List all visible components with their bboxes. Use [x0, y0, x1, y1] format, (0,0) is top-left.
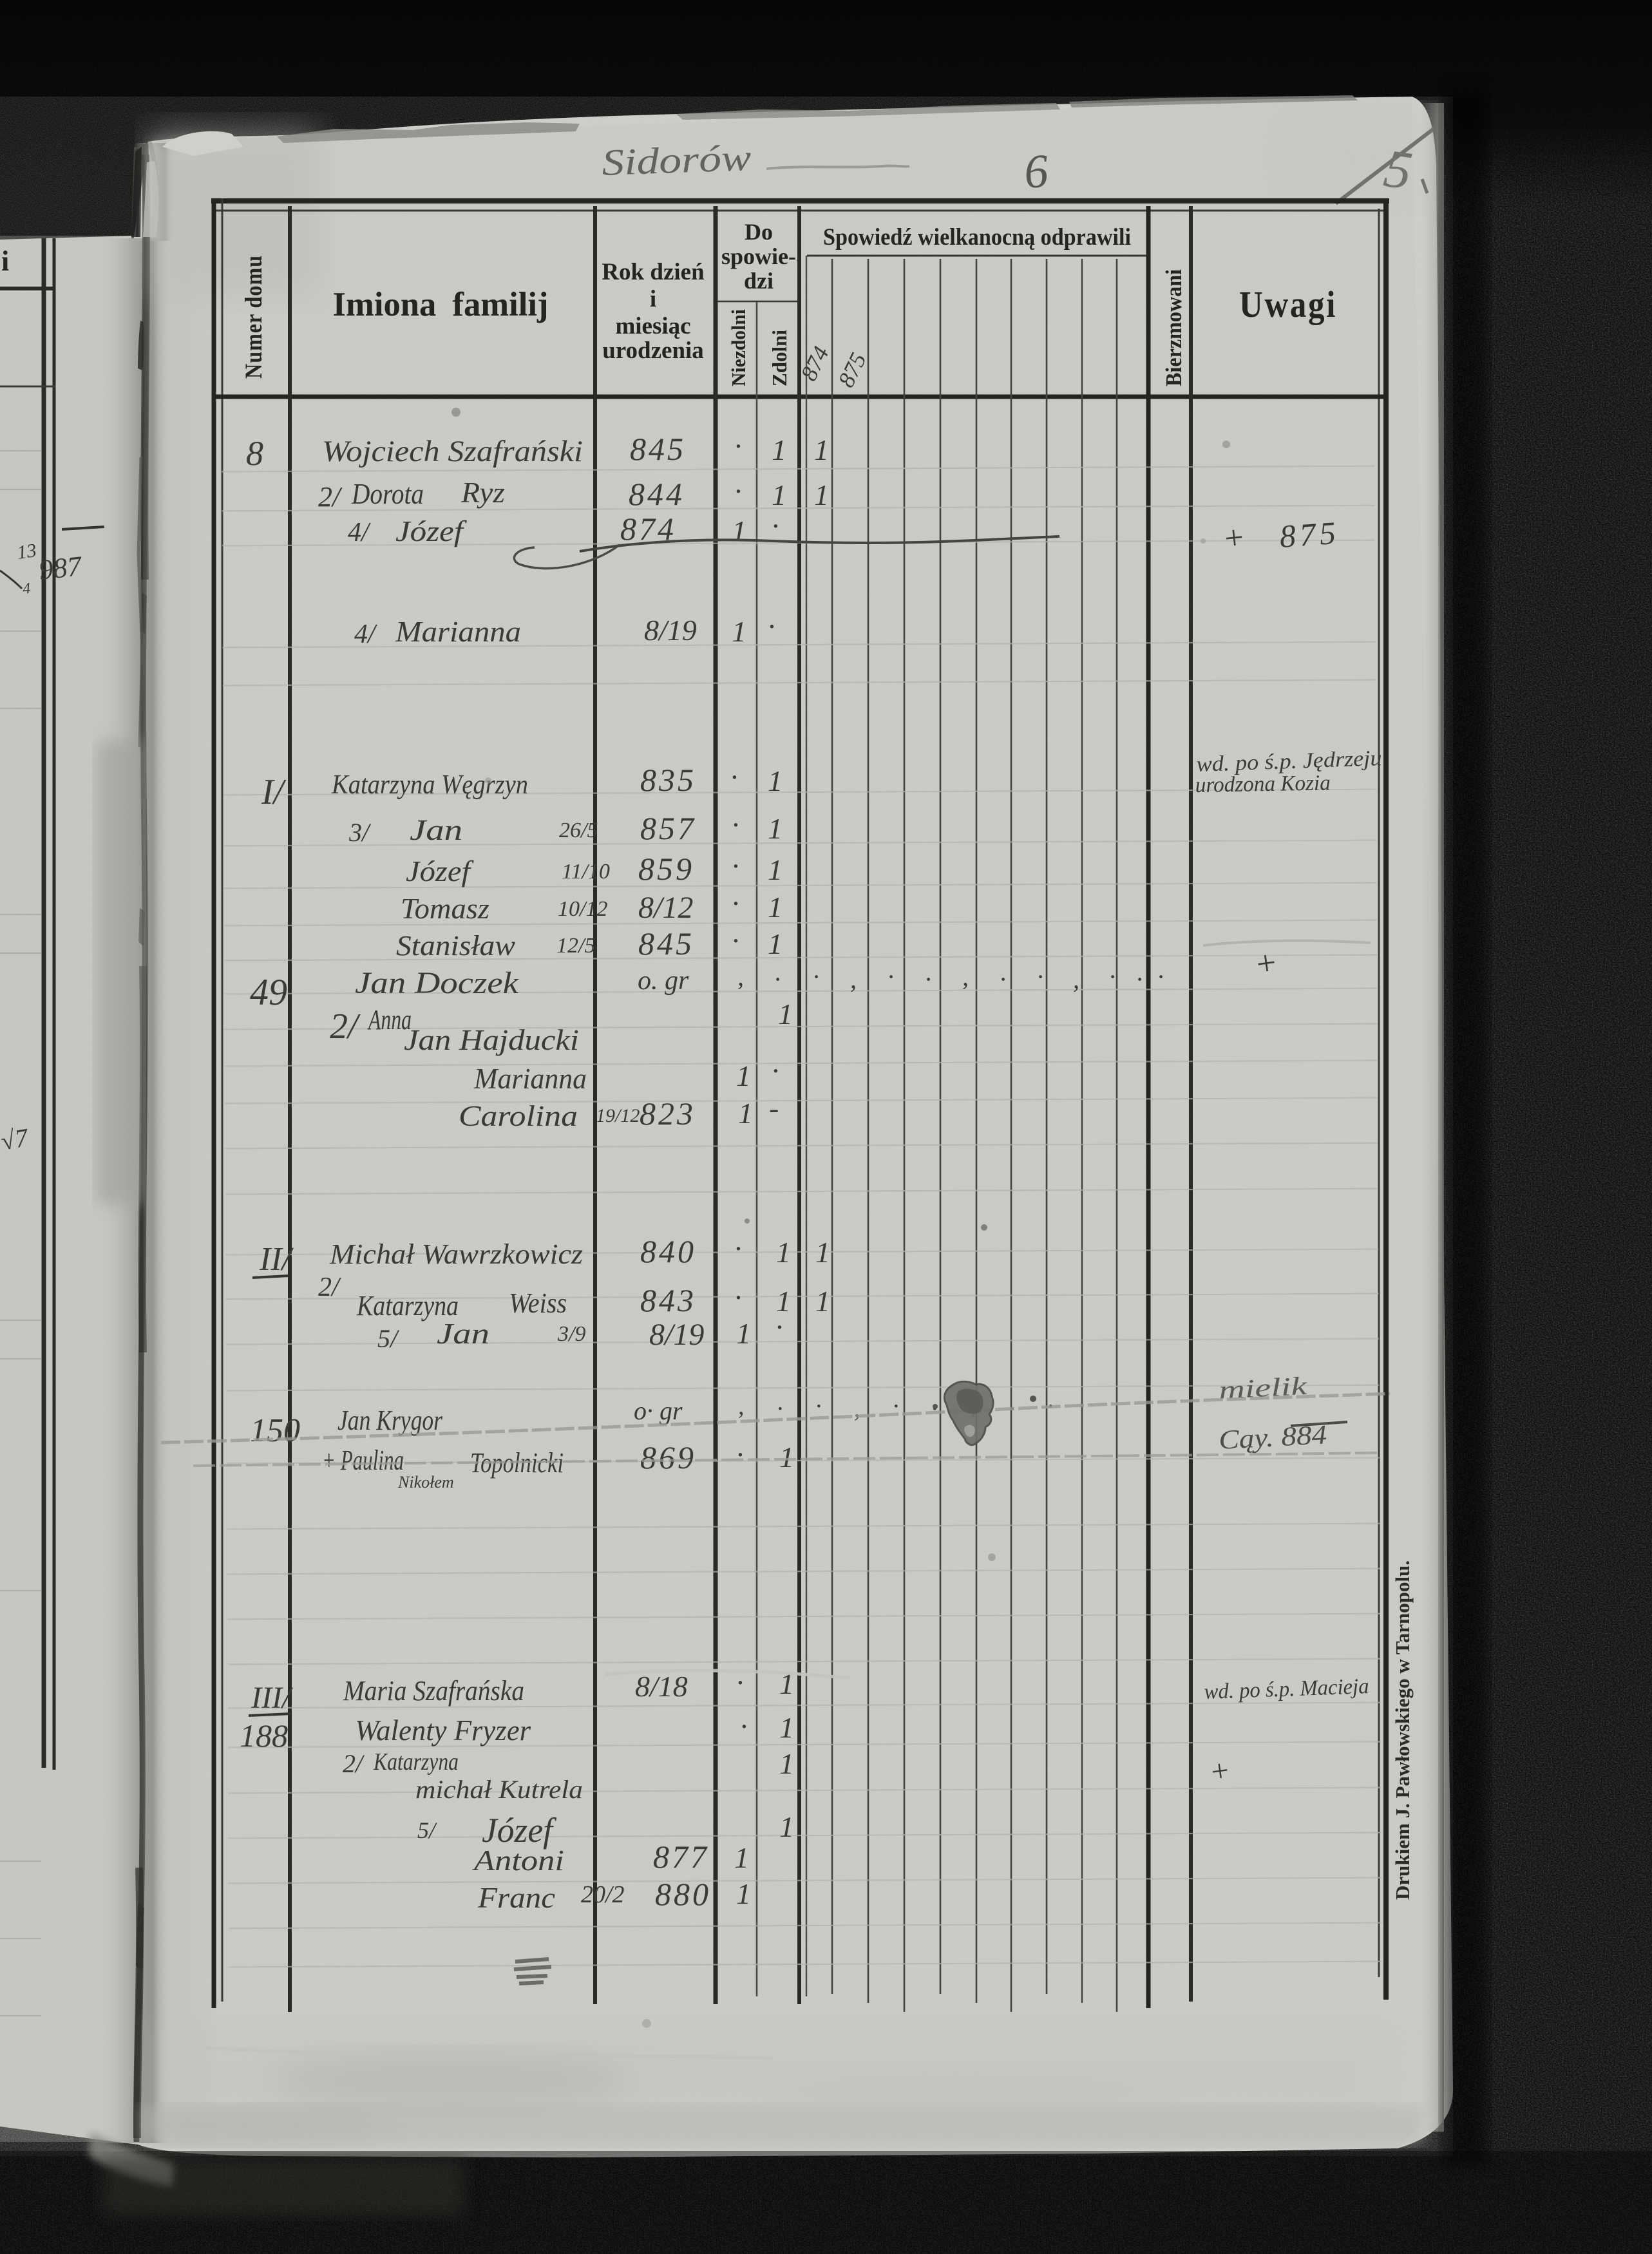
- svg-text:49: 49: [250, 971, 287, 1013]
- svg-text:Józef: Józef: [395, 515, 468, 547]
- svg-text:1: 1: [732, 515, 746, 547]
- svg-text:-: -: [769, 1092, 779, 1124]
- svg-text:III/: III/: [251, 1681, 293, 1715]
- svg-text:10/12: 10/12: [558, 897, 607, 921]
- svg-text:·: ·: [931, 1396, 938, 1423]
- svg-text:,: ,: [1073, 965, 1079, 994]
- svg-text:1: 1: [736, 1059, 751, 1092]
- svg-text:miesiąc: miesiąc: [615, 313, 690, 339]
- svg-text:·: ·: [772, 509, 779, 542]
- svg-text:857: 857: [640, 810, 696, 846]
- svg-text:5/: 5/: [377, 1324, 400, 1353]
- svg-text:844: 844: [629, 476, 685, 512]
- svg-text:8/12: 8/12: [638, 891, 693, 925]
- svg-text:1: 1: [768, 764, 783, 797]
- svg-text:1: 1: [778, 998, 793, 1030]
- svg-text:Antoni: Antoni: [472, 1844, 564, 1877]
- svg-text:1: 1: [815, 1285, 830, 1318]
- svg-text:Franc: Franc: [477, 1881, 555, 1914]
- svg-text:urodzona Kozia: urodzona Kozia: [1195, 771, 1331, 797]
- svg-text:urodzenia: urodzenia: [602, 337, 704, 364]
- svg-text:·: ·: [815, 1393, 822, 1420]
- svg-text:·: ·: [730, 761, 738, 793]
- svg-text:Jan Krygor: Jan Krygor: [337, 1405, 443, 1436]
- svg-text:+: +: [1220, 519, 1247, 558]
- svg-text:Jan: Jan: [410, 813, 462, 846]
- svg-text:845: 845: [630, 431, 686, 467]
- svg-text:1: 1: [779, 1747, 794, 1780]
- svg-text:Józef: Józef: [406, 855, 475, 887]
- svg-text:840: 840: [640, 1233, 696, 1269]
- svg-text:2/: 2/: [318, 1273, 341, 1302]
- svg-text:Nikołem: Nikołem: [397, 1473, 454, 1492]
- svg-text:·: ·: [813, 962, 819, 991]
- svg-text:I/: I/: [261, 772, 287, 812]
- svg-text:dzi: dzi: [744, 268, 774, 294]
- svg-text:i: i: [650, 286, 656, 312]
- svg-text:1: 1: [776, 1236, 791, 1269]
- svg-text:1: 1: [772, 433, 786, 466]
- svg-text:,: ,: [738, 1393, 745, 1420]
- svg-text:·: ·: [734, 430, 742, 462]
- svg-text:Numer domu: Numer domu: [241, 255, 267, 379]
- svg-text:12/5: 12/5: [556, 934, 595, 958]
- svg-text:4/: 4/: [354, 620, 377, 649]
- svg-text:3/9: 3/9: [557, 1322, 585, 1346]
- svg-text:Carolina: Carolina: [459, 1099, 578, 1132]
- svg-text:Marianna: Marianna: [473, 1062, 587, 1095]
- svg-text:150: 150: [250, 1412, 300, 1449]
- svg-text:II/: II/: [259, 1241, 294, 1278]
- svg-text:,: ,: [850, 965, 857, 994]
- svg-text:1: 1: [814, 433, 829, 466]
- svg-text:1: 1: [736, 1317, 751, 1350]
- svg-text:987: 987: [37, 550, 84, 586]
- svg-text:i: i: [1, 245, 9, 277]
- svg-text:·: ·: [1109, 962, 1116, 991]
- svg-text:·: ·: [734, 475, 742, 507]
- svg-text:6: 6: [1022, 145, 1050, 199]
- svg-text:Spowiedź wielkanocną odprawili: Spowiedź wielkanocną odprawili: [823, 224, 1131, 251]
- svg-text:845: 845: [638, 925, 694, 961]
- svg-text:Jan Doczek: Jan Doczek: [355, 966, 520, 1000]
- svg-text:michał Kutrela: michał Kutrela: [415, 1775, 583, 1804]
- svg-text:o. gr: o. gr: [638, 966, 689, 996]
- svg-text:Marianna: Marianna: [395, 615, 521, 648]
- svg-text:Katarzyna Węgrzyn: Katarzyna Węgrzyn: [331, 770, 528, 800]
- svg-text:,: ,: [737, 962, 744, 991]
- svg-text:·: ·: [732, 849, 739, 882]
- svg-text:Do: Do: [745, 219, 773, 245]
- svg-text:,: ,: [962, 962, 969, 991]
- svg-text:4/: 4/: [348, 518, 371, 547]
- svg-text:8/19: 8/19: [644, 614, 697, 647]
- svg-text:Drukiem J. Pawłowskiego w Tarn: Drukiem J. Pawłowskiego w Tarnopolu.: [1391, 1560, 1414, 1900]
- svg-text:+ Paulina: + Paulina: [322, 1444, 404, 1476]
- svg-text:·: ·: [1157, 962, 1164, 991]
- svg-text:·: ·: [734, 1232, 742, 1265]
- svg-text:Imiona familij: Imiona familij: [333, 286, 549, 323]
- svg-text:Dorota: Dorota: [351, 477, 424, 510]
- svg-text:spowie-: spowie-: [721, 243, 796, 269]
- svg-text:823: 823: [640, 1095, 696, 1132]
- svg-text:835: 835: [640, 762, 696, 798]
- svg-text:188: 188: [240, 1718, 288, 1754]
- svg-text:1: 1: [779, 1441, 794, 1473]
- svg-text:26/5: 26/5: [559, 819, 598, 842]
- svg-text:1: 1: [815, 1236, 830, 1269]
- svg-text:·: ·: [740, 1710, 748, 1743]
- svg-text:1: 1: [779, 1810, 794, 1843]
- svg-text:11/10: 11/10: [562, 860, 610, 884]
- svg-text:8/19: 8/19: [649, 1318, 704, 1352]
- svg-text:·: ·: [732, 887, 739, 920]
- svg-text:843: 843: [640, 1282, 696, 1318]
- svg-text:19/12: 19/12: [596, 1105, 640, 1126]
- svg-text:20/2: 20/2: [581, 1881, 625, 1908]
- svg-text:1: 1: [738, 1097, 753, 1130]
- svg-text:1: 1: [768, 927, 783, 960]
- svg-text:Jan: Jan: [437, 1317, 489, 1350]
- svg-text:859: 859: [638, 851, 694, 887]
- svg-text:Sidorów: Sidorów: [601, 137, 752, 184]
- svg-text:1: 1: [768, 891, 783, 923]
- svg-text:·: ·: [768, 610, 775, 643]
- svg-text:Zdolni: Zdolni: [768, 330, 791, 386]
- svg-text:·: ·: [1136, 965, 1143, 994]
- svg-text:1: 1: [772, 478, 786, 511]
- svg-text:1: 1: [732, 615, 746, 648]
- svg-text:Weiss: Weiss: [509, 1287, 567, 1319]
- svg-text:·: ·: [734, 1281, 742, 1314]
- svg-text:,: ,: [854, 1396, 860, 1423]
- svg-text:Uwagi: Uwagi: [1239, 283, 1337, 325]
- svg-text:·: ·: [1037, 962, 1043, 991]
- svg-text:Ryz: Ryz: [460, 476, 505, 509]
- svg-text:·: ·: [732, 808, 739, 841]
- svg-text:·: ·: [772, 1054, 779, 1087]
- svg-text:877: 877: [653, 1839, 709, 1875]
- svg-text:Bierzmowani: Bierzmowani: [1161, 269, 1186, 386]
- svg-text:1: 1: [734, 1841, 749, 1874]
- svg-text:13: 13: [15, 540, 37, 563]
- svg-text:8: 8: [246, 434, 263, 473]
- svg-text:Niezdolni: Niezdolni: [727, 309, 750, 386]
- svg-text:5/: 5/: [417, 1817, 437, 1843]
- svg-text:1: 1: [814, 478, 829, 511]
- svg-text:2/: 2/: [318, 481, 343, 513]
- svg-text:Maria Szafrańska: Maria Szafrańska: [343, 1675, 524, 1707]
- svg-text:875: 875: [1278, 515, 1341, 554]
- svg-text:·: ·: [925, 965, 931, 994]
- svg-text:·: ·: [775, 1311, 783, 1343]
- svg-text:Rok dzień: Rok dzień: [602, 259, 705, 285]
- svg-text:Stanisław: Stanisław: [396, 930, 516, 961]
- svg-text:Walenty Fryzer: Walenty Fryzer: [355, 1714, 531, 1747]
- svg-text:Wojciech Szafrański: Wojciech Szafrański: [322, 435, 583, 468]
- svg-text:2/: 2/: [343, 1749, 365, 1778]
- svg-text:8/18: 8/18: [635, 1670, 688, 1703]
- svg-text:1: 1: [768, 812, 783, 845]
- svg-text:·: ·: [732, 924, 739, 957]
- svg-text:Jan Hajducki: Jan Hajducki: [404, 1023, 579, 1056]
- svg-text:1: 1: [736, 1877, 751, 1910]
- svg-text:·: ·: [736, 1438, 744, 1471]
- svg-text:Katarzyna: Katarzyna: [373, 1748, 459, 1776]
- svg-text:·: ·: [774, 965, 781, 994]
- svg-text:o· gr: o· gr: [634, 1396, 683, 1425]
- svg-text:880: 880: [655, 1876, 711, 1912]
- svg-text:Michał Wawrzkowicz: Michał Wawrzkowicz: [329, 1238, 583, 1270]
- svg-text:3/: 3/: [348, 818, 372, 847]
- svg-text:·: ·: [1000, 965, 1006, 994]
- svg-text:2/: 2/: [330, 1007, 361, 1046]
- svg-text:·: ·: [888, 962, 894, 991]
- svg-text:869: 869: [640, 1439, 696, 1475]
- svg-text:1: 1: [768, 853, 783, 886]
- svg-text:1: 1: [779, 1711, 794, 1744]
- svg-text:Tomasz: Tomasz: [401, 892, 489, 925]
